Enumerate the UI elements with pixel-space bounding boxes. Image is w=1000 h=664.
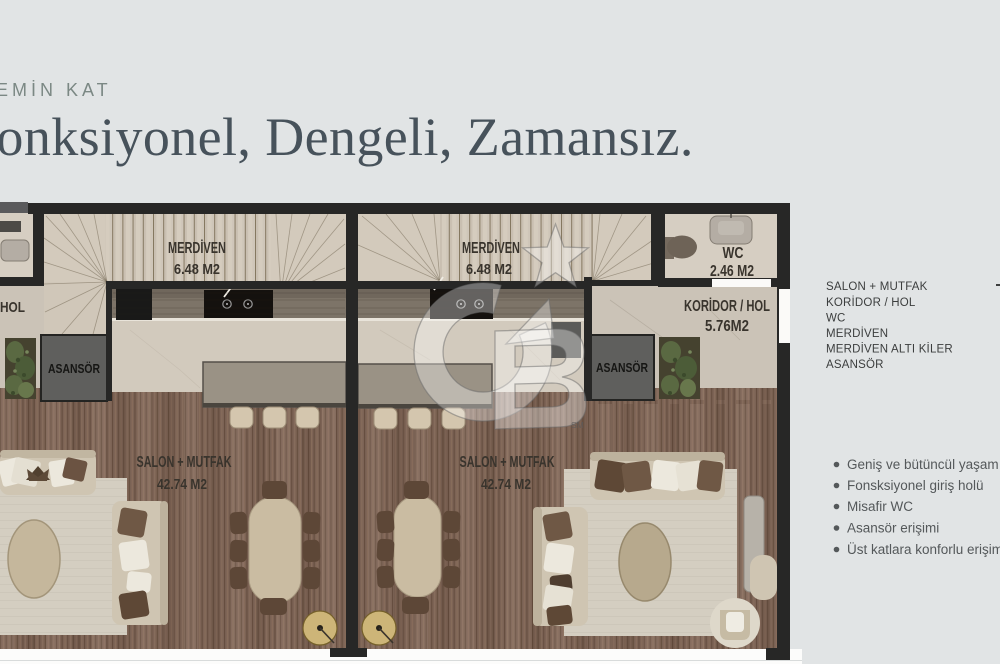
svg-text:WC: WC: [826, 313, 846, 325]
svg-text:42.74 M2: 42.74 M2: [157, 476, 207, 493]
svg-text:ASANSÖR: ASANSÖR: [826, 359, 884, 371]
svg-text:6.48 M2: 6.48 M2: [466, 261, 512, 278]
svg-text:SALON + MUTFAK: SALON + MUTFAK: [826, 281, 928, 293]
svg-text:2.46 M2: 2.46 M2: [710, 263, 754, 280]
svg-text:Misafir WC: Misafir WC: [847, 499, 913, 514]
svg-text:SALON + MUTFAK: SALON + MUTFAK: [460, 454, 556, 471]
svg-text:SALON + MUTFAK: SALON + MUTFAK: [137, 454, 233, 471]
svg-text:5.76M2: 5.76M2: [705, 318, 749, 335]
svg-text:Asansör erişimi: Asansör erişimi: [847, 521, 939, 536]
svg-text:WC: WC: [723, 245, 744, 262]
svg-text:Üst katlara konforlu erişim: Üst katlara konforlu erişim: [847, 542, 1000, 557]
svg-text:SM: SM: [571, 420, 584, 430]
svg-text:ASANSÖR: ASANSÖR: [596, 360, 648, 375]
svg-text:MERDİVEN: MERDİVEN: [826, 327, 888, 340]
svg-text:42.74 M2: 42.74 M2: [481, 476, 531, 493]
svg-text:EMİN KAT: EMİN KAT: [0, 80, 112, 100]
svg-text:Fonsksiyonel giriş holü: Fonsksiyonel giriş holü: [847, 478, 984, 493]
svg-text:KORİDOR / HOL: KORİDOR / HOL: [684, 298, 770, 315]
svg-text:MERDİVEN ALTI KİLER: MERDİVEN ALTI KİLER: [826, 343, 953, 356]
svg-text:Fonksiyonel, Dengeli, Zamansız: Fonksiyonel, Dengeli, Zamansız.: [0, 107, 694, 167]
svg-text:Geniş ve bütüncül yaşam: Geniş ve bütüncül yaşam: [847, 457, 999, 472]
svg-text:HOL: HOL: [0, 299, 25, 316]
svg-text:ASANSÖR: ASANSÖR: [48, 361, 100, 376]
svg-text:6.48 M2: 6.48 M2: [174, 261, 220, 278]
svg-text:MERDİVEN: MERDİVEN: [462, 240, 520, 257]
svg-text:MERDİVEN: MERDİVEN: [168, 240, 226, 257]
svg-text:KORİDOR / HOL: KORİDOR / HOL: [826, 296, 916, 309]
